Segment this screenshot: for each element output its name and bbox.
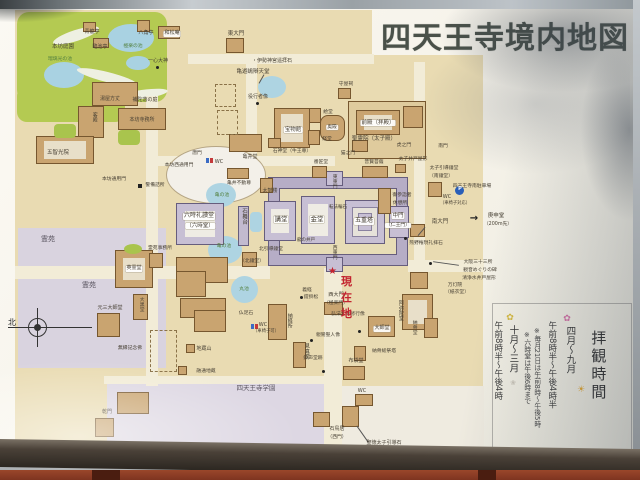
railing-post	[478, 470, 496, 480]
you-are-here-star-icon: ★	[328, 266, 337, 277]
compass-north-label: 北	[8, 317, 16, 328]
tree-shadow-overlay	[380, 0, 640, 480]
photo-of-temple-map-sign: 青龍亭和松庵八角亭本坊庭園臨池亭極楽の池瑠璃光の池一心大神湯屋方丈補陀落の庭客殿…	[0, 0, 640, 480]
sign-frame-right	[633, 0, 640, 480]
railing-post	[92, 470, 120, 480]
you-are-here-label: 現在地	[341, 273, 354, 321]
sign-frame-top	[0, 0, 640, 9]
